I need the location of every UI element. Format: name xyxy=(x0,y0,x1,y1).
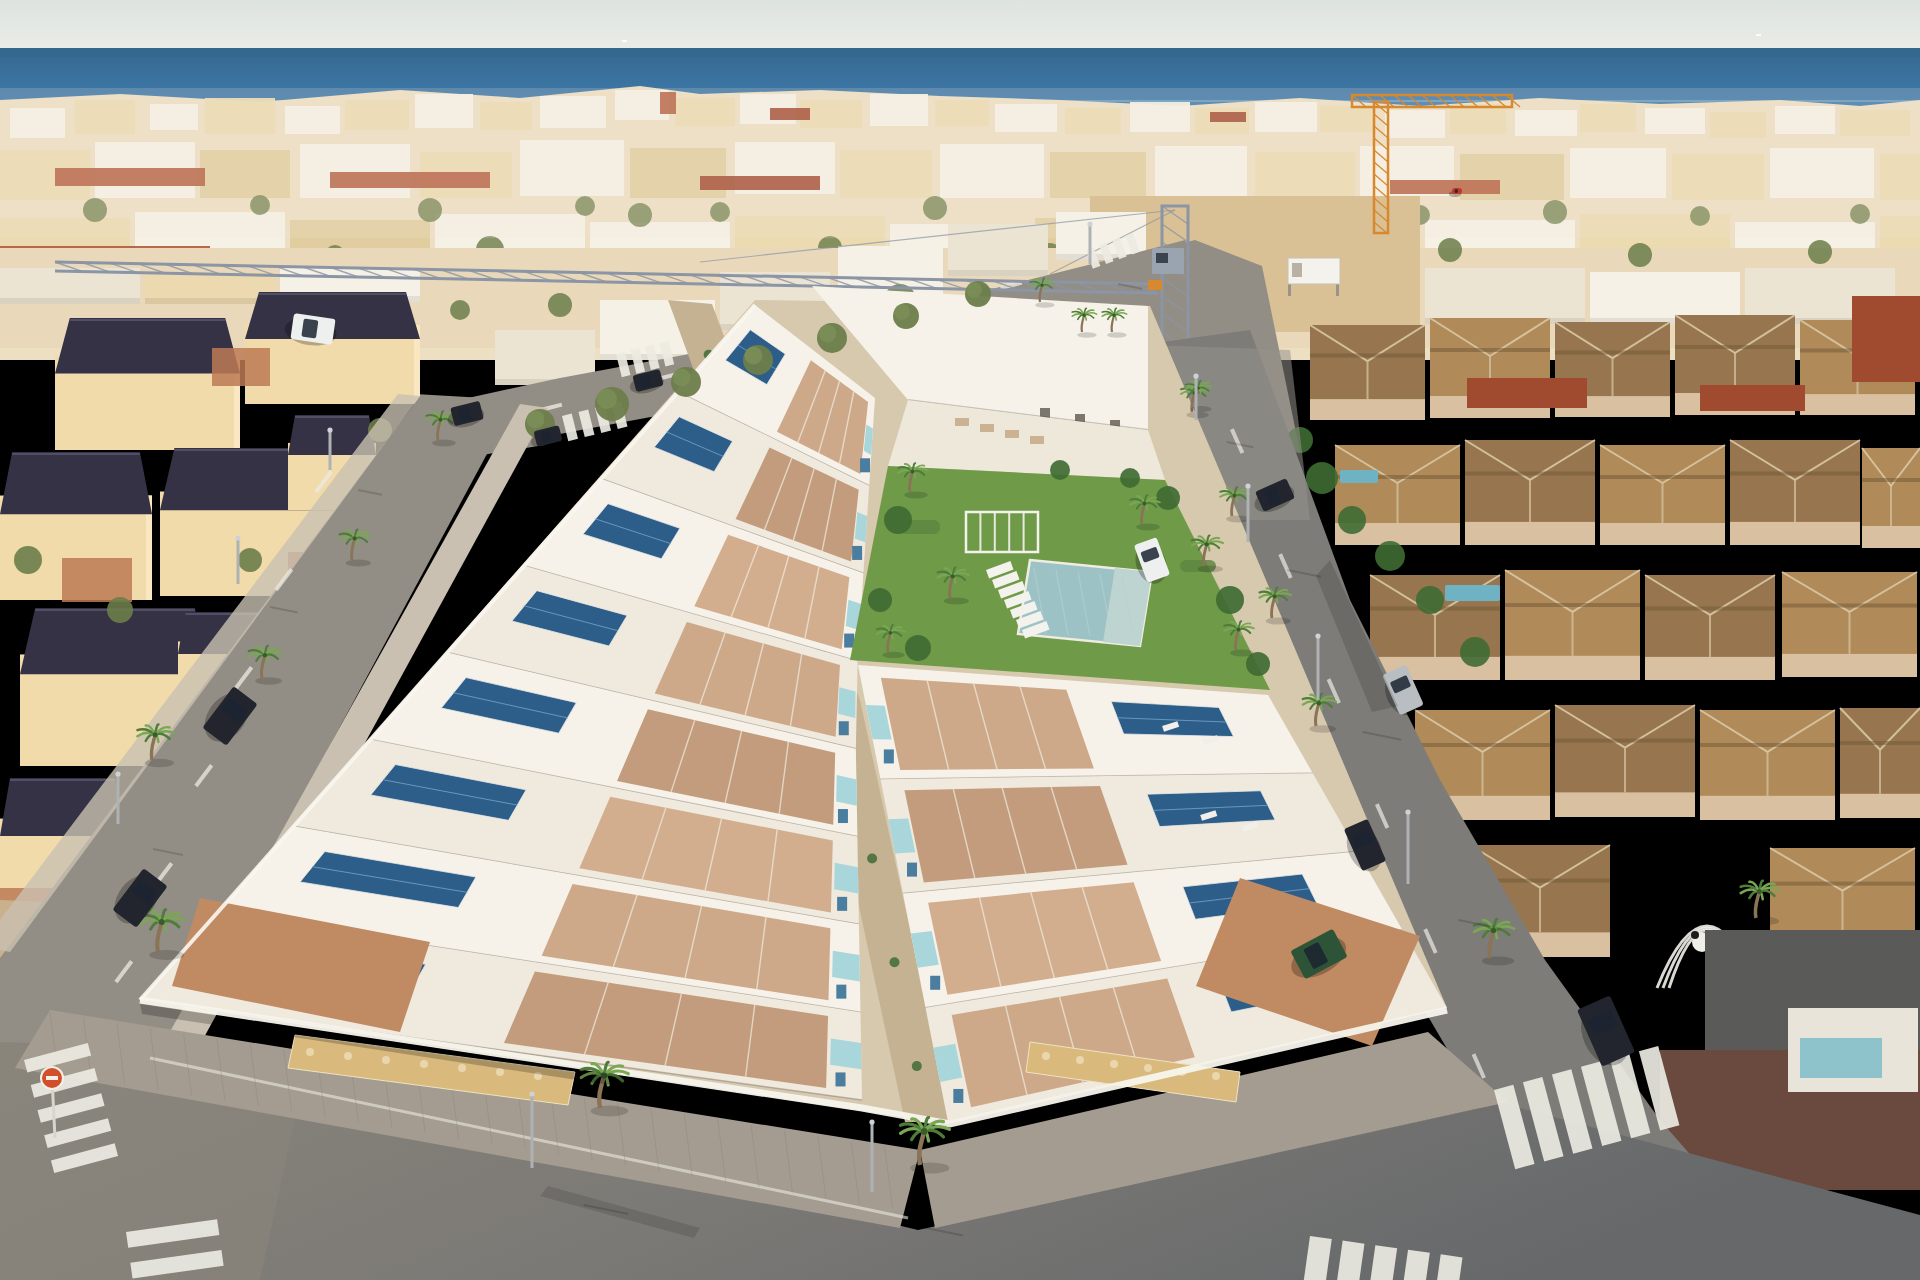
tree-highlight xyxy=(745,347,763,365)
tree-highlight xyxy=(673,369,691,387)
mid-tree xyxy=(1438,238,1462,262)
walkway-planter xyxy=(912,1061,922,1071)
roof-texture xyxy=(1782,604,1917,608)
horizon-band xyxy=(0,48,1920,57)
stone-texture xyxy=(420,1060,428,1068)
terracotta-patio xyxy=(212,348,270,386)
street-lamp-head xyxy=(1193,373,1198,378)
garden-tree xyxy=(107,597,133,623)
palm-crown xyxy=(1082,314,1085,317)
blue-accent-panel xyxy=(837,897,847,911)
backyard-pool xyxy=(1340,470,1378,483)
palm-crown xyxy=(1491,928,1497,934)
street-lamp-head xyxy=(869,1119,874,1124)
blue-accent-panel xyxy=(844,634,854,648)
garden-tree xyxy=(238,548,262,572)
palm-trunk xyxy=(1755,892,1759,918)
stone-texture xyxy=(458,1064,466,1072)
red-tile-roof xyxy=(1852,296,1920,382)
stone-texture xyxy=(344,1052,352,1060)
red-tile-roof xyxy=(1467,378,1587,408)
street-lamp-head xyxy=(115,771,120,776)
palm-crown xyxy=(951,574,955,578)
palm-crown xyxy=(1112,314,1115,317)
roof-texture xyxy=(1310,354,1425,358)
blue-accent-panel xyxy=(836,1072,846,1086)
palm-crown xyxy=(353,536,357,540)
palm-crown xyxy=(1273,594,1277,598)
palm-crown xyxy=(1233,494,1237,498)
backyard-pool xyxy=(1445,585,1500,601)
garden-shrub xyxy=(1050,460,1070,480)
garden-shrub xyxy=(1120,468,1140,488)
palm-shadow xyxy=(1035,302,1055,308)
stone-texture xyxy=(306,1048,314,1056)
garden-shrub xyxy=(868,588,892,612)
bottom-right-structure xyxy=(1800,1038,1882,1078)
mid-building xyxy=(948,224,1048,276)
palm-crown xyxy=(439,418,443,422)
mid-tree xyxy=(450,300,470,320)
plunge-pool xyxy=(830,1038,861,1069)
rooftop-terrace xyxy=(881,678,1094,770)
palm-shadow xyxy=(882,652,904,658)
roof-texture xyxy=(1862,478,1920,482)
blue-accent-panel xyxy=(860,458,870,472)
palm-shadow xyxy=(591,1106,629,1117)
roof-texture xyxy=(1600,475,1725,479)
palm-shadow xyxy=(1748,917,1779,926)
red-tile-roof xyxy=(1700,385,1805,411)
roof-texture xyxy=(1730,472,1860,476)
boat-dot xyxy=(1756,34,1761,36)
palm-crown xyxy=(153,732,158,737)
garden-tree xyxy=(14,546,42,574)
palm-shadow xyxy=(1226,516,1250,523)
panda-ear xyxy=(1691,931,1699,939)
blue-accent-panel xyxy=(884,749,894,763)
palm-shadow xyxy=(149,950,184,960)
outdoor-furniture xyxy=(1030,436,1044,444)
palm-crown xyxy=(911,470,915,474)
palm-crown xyxy=(159,919,165,925)
blue-accent-panel xyxy=(839,721,849,735)
roof-texture xyxy=(1430,348,1550,352)
building-shade xyxy=(145,298,275,304)
tree-highlight xyxy=(894,304,910,320)
boat-dot xyxy=(622,40,627,42)
roof-texture xyxy=(1675,345,1795,349)
billboard-leg xyxy=(1336,284,1339,296)
garden-shrub xyxy=(884,506,912,534)
hedge xyxy=(1416,586,1444,614)
banana-plant xyxy=(1185,629,1207,651)
palm-crown xyxy=(1317,701,1322,706)
roof-texture xyxy=(1700,743,1835,747)
stone-texture xyxy=(1042,1052,1050,1060)
palm-crown xyxy=(921,1128,928,1135)
roof-texture xyxy=(1555,351,1670,355)
mid-tree xyxy=(1628,243,1652,267)
outdoor-furniture xyxy=(1005,430,1019,438)
walkway-planter xyxy=(867,854,877,864)
building-shade xyxy=(948,270,1048,276)
solar-panel xyxy=(1147,791,1275,827)
street-lamp-head xyxy=(1245,483,1250,488)
hedge xyxy=(1375,541,1405,571)
stone-texture xyxy=(1076,1056,1084,1064)
tree-highlight xyxy=(527,411,545,429)
palm-crown xyxy=(888,631,892,635)
roof-texture xyxy=(1840,741,1920,745)
palm-crown xyxy=(1757,889,1762,894)
villa-roof-dark xyxy=(0,452,152,514)
palm-shadow xyxy=(1077,332,1097,338)
roof-texture xyxy=(1505,603,1640,607)
stone-texture xyxy=(496,1068,504,1076)
hedge xyxy=(1460,637,1490,667)
palm-shadow xyxy=(346,559,371,566)
palm-shadow xyxy=(910,1162,949,1173)
palm-shadow xyxy=(1186,412,1208,418)
roof-texture xyxy=(1555,739,1695,743)
crane-counterweight xyxy=(1148,280,1162,290)
billboard-leg xyxy=(1288,284,1291,296)
hedge xyxy=(1306,462,1338,494)
plunge-pool xyxy=(836,775,857,806)
street-lamp-head xyxy=(327,427,332,432)
blue-accent-panel xyxy=(930,976,940,990)
mid-tree xyxy=(548,293,572,317)
sign-bar xyxy=(46,1076,58,1080)
palm-shadow xyxy=(1309,725,1336,733)
outdoor-furniture xyxy=(980,424,994,432)
terracotta-patio xyxy=(62,558,132,602)
screenshot-root xyxy=(0,0,1920,1280)
blue-accent-panel xyxy=(907,863,917,877)
palm-crown xyxy=(1143,502,1147,506)
haze-overlay xyxy=(0,88,1920,238)
plunge-pool xyxy=(838,687,855,718)
street-lamp-head xyxy=(1405,809,1410,814)
aerial-photo xyxy=(0,0,1920,1280)
mid-building xyxy=(1425,268,1585,324)
stone-texture xyxy=(382,1056,390,1064)
outdoor-furniture xyxy=(955,418,969,426)
palm-shadow xyxy=(1107,332,1127,338)
hedge xyxy=(1338,506,1366,534)
roof-texture xyxy=(1465,472,1595,476)
stone-texture xyxy=(1110,1060,1118,1068)
palm-shadow xyxy=(944,597,969,604)
building-shade xyxy=(0,298,140,304)
garden-shrub xyxy=(1156,486,1180,510)
tree-highlight xyxy=(966,282,982,298)
car-glass xyxy=(301,319,318,339)
roof-texture xyxy=(1645,607,1775,611)
plunge-pool xyxy=(834,863,858,894)
palm-shadow xyxy=(145,759,174,767)
palm-shadow xyxy=(1482,956,1514,965)
palm-shadow xyxy=(1266,617,1291,624)
plunge-pool xyxy=(832,951,860,982)
palm-crown xyxy=(1040,284,1043,287)
street-lamp-head xyxy=(235,535,240,540)
garden-shrub xyxy=(905,635,931,661)
blue-accent-panel xyxy=(838,809,848,823)
car-glass xyxy=(1455,189,1459,193)
mid-tree xyxy=(1808,240,1832,264)
blue-accent-panel xyxy=(836,985,846,999)
palm-shadow xyxy=(904,492,928,499)
crane-cab-window xyxy=(1156,253,1168,263)
palm-shadow xyxy=(1198,565,1223,572)
palm-shadow xyxy=(432,440,456,447)
blue-accent-panel xyxy=(953,1089,963,1103)
blue-accent-panel xyxy=(852,546,862,560)
walkway-planter xyxy=(889,957,899,967)
street-lamp-head xyxy=(1315,633,1320,638)
palm-shadow xyxy=(1136,524,1160,531)
palm-shadow xyxy=(1230,650,1254,657)
tree-highlight xyxy=(819,325,837,343)
roof-texture xyxy=(1415,743,1550,747)
stone-texture xyxy=(1212,1072,1220,1080)
palm-shadow xyxy=(255,677,282,685)
garden-shrub xyxy=(1216,586,1244,614)
palm-shadow xyxy=(1191,406,1212,412)
billboard-logo xyxy=(1292,263,1302,277)
street-lamp-head xyxy=(1087,221,1092,226)
palm-crown xyxy=(1205,542,1209,546)
palm-crown xyxy=(263,653,268,658)
roof-texture xyxy=(1770,882,1915,886)
palm-crown xyxy=(1237,628,1241,632)
street-lamp-head xyxy=(529,1091,534,1096)
stone-texture xyxy=(1144,1064,1152,1072)
tree-highlight xyxy=(597,389,617,409)
